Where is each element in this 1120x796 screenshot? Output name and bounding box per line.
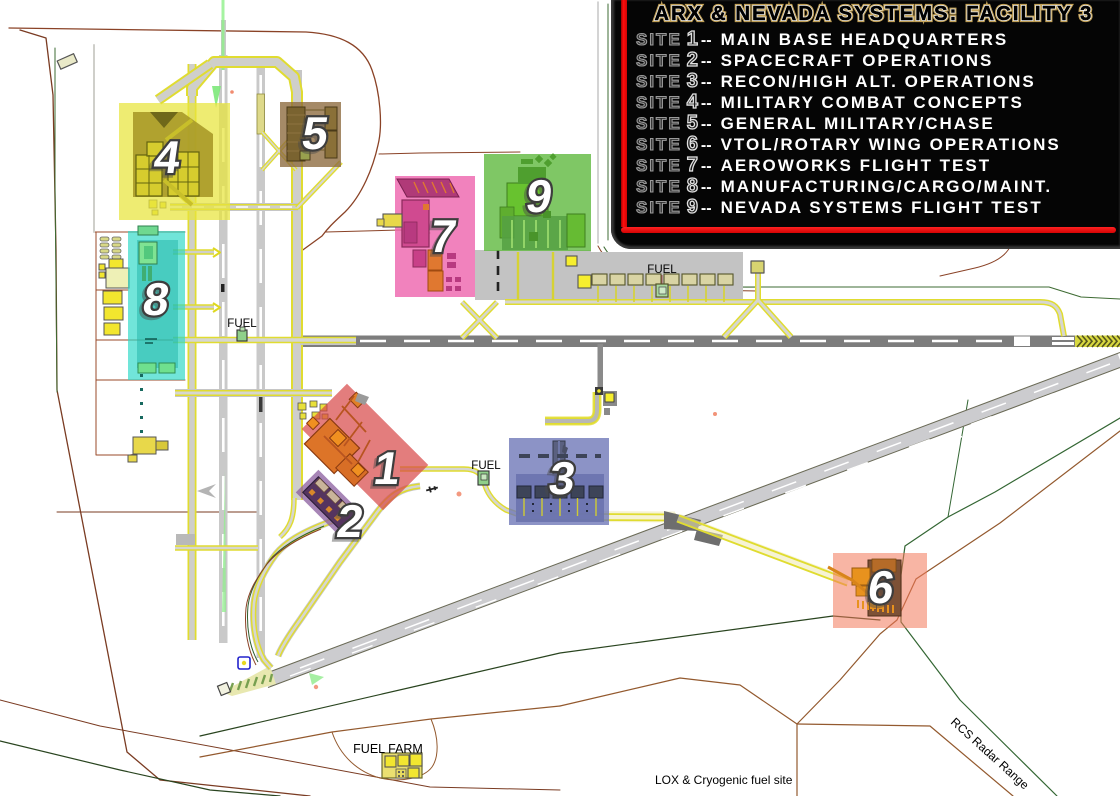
- svg-text:FUEL: FUEL: [471, 460, 501, 472]
- svg-text:LOX & Cryogenic fuel site: LOX & Cryogenic fuel site: [655, 773, 793, 787]
- svg-text:FUEL FARM: FUEL FARM: [353, 742, 423, 756]
- svg-text:FUEL: FUEL: [647, 264, 677, 276]
